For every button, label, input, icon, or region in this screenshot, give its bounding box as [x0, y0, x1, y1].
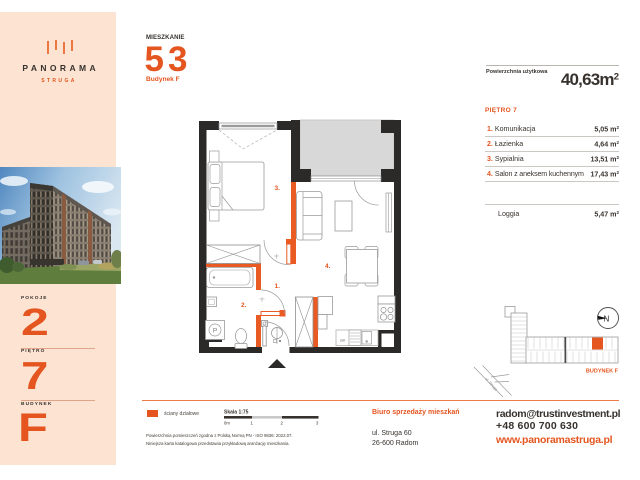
svg-text:0m: 0m: [224, 421, 230, 426]
svg-text:Skala 1:75: Skala 1:75: [224, 410, 249, 416]
svg-text:1: 1: [251, 421, 254, 426]
svg-text:2: 2: [281, 421, 284, 426]
svg-text:1.: 1.: [275, 283, 281, 290]
svg-text:ul. Struga: ul. Struga: [484, 377, 498, 392]
svg-text:zm: zm: [340, 338, 346, 343]
svg-text:3.: 3.: [275, 185, 281, 192]
svg-text:N: N: [604, 315, 610, 324]
svg-text:P: P: [213, 327, 217, 334]
svg-text:3: 3: [316, 421, 319, 426]
svg-text:BUDYNEK F: BUDYNEK F: [586, 369, 619, 375]
svg-text:4.: 4.: [325, 263, 331, 270]
svg-text:2.: 2.: [241, 302, 247, 309]
